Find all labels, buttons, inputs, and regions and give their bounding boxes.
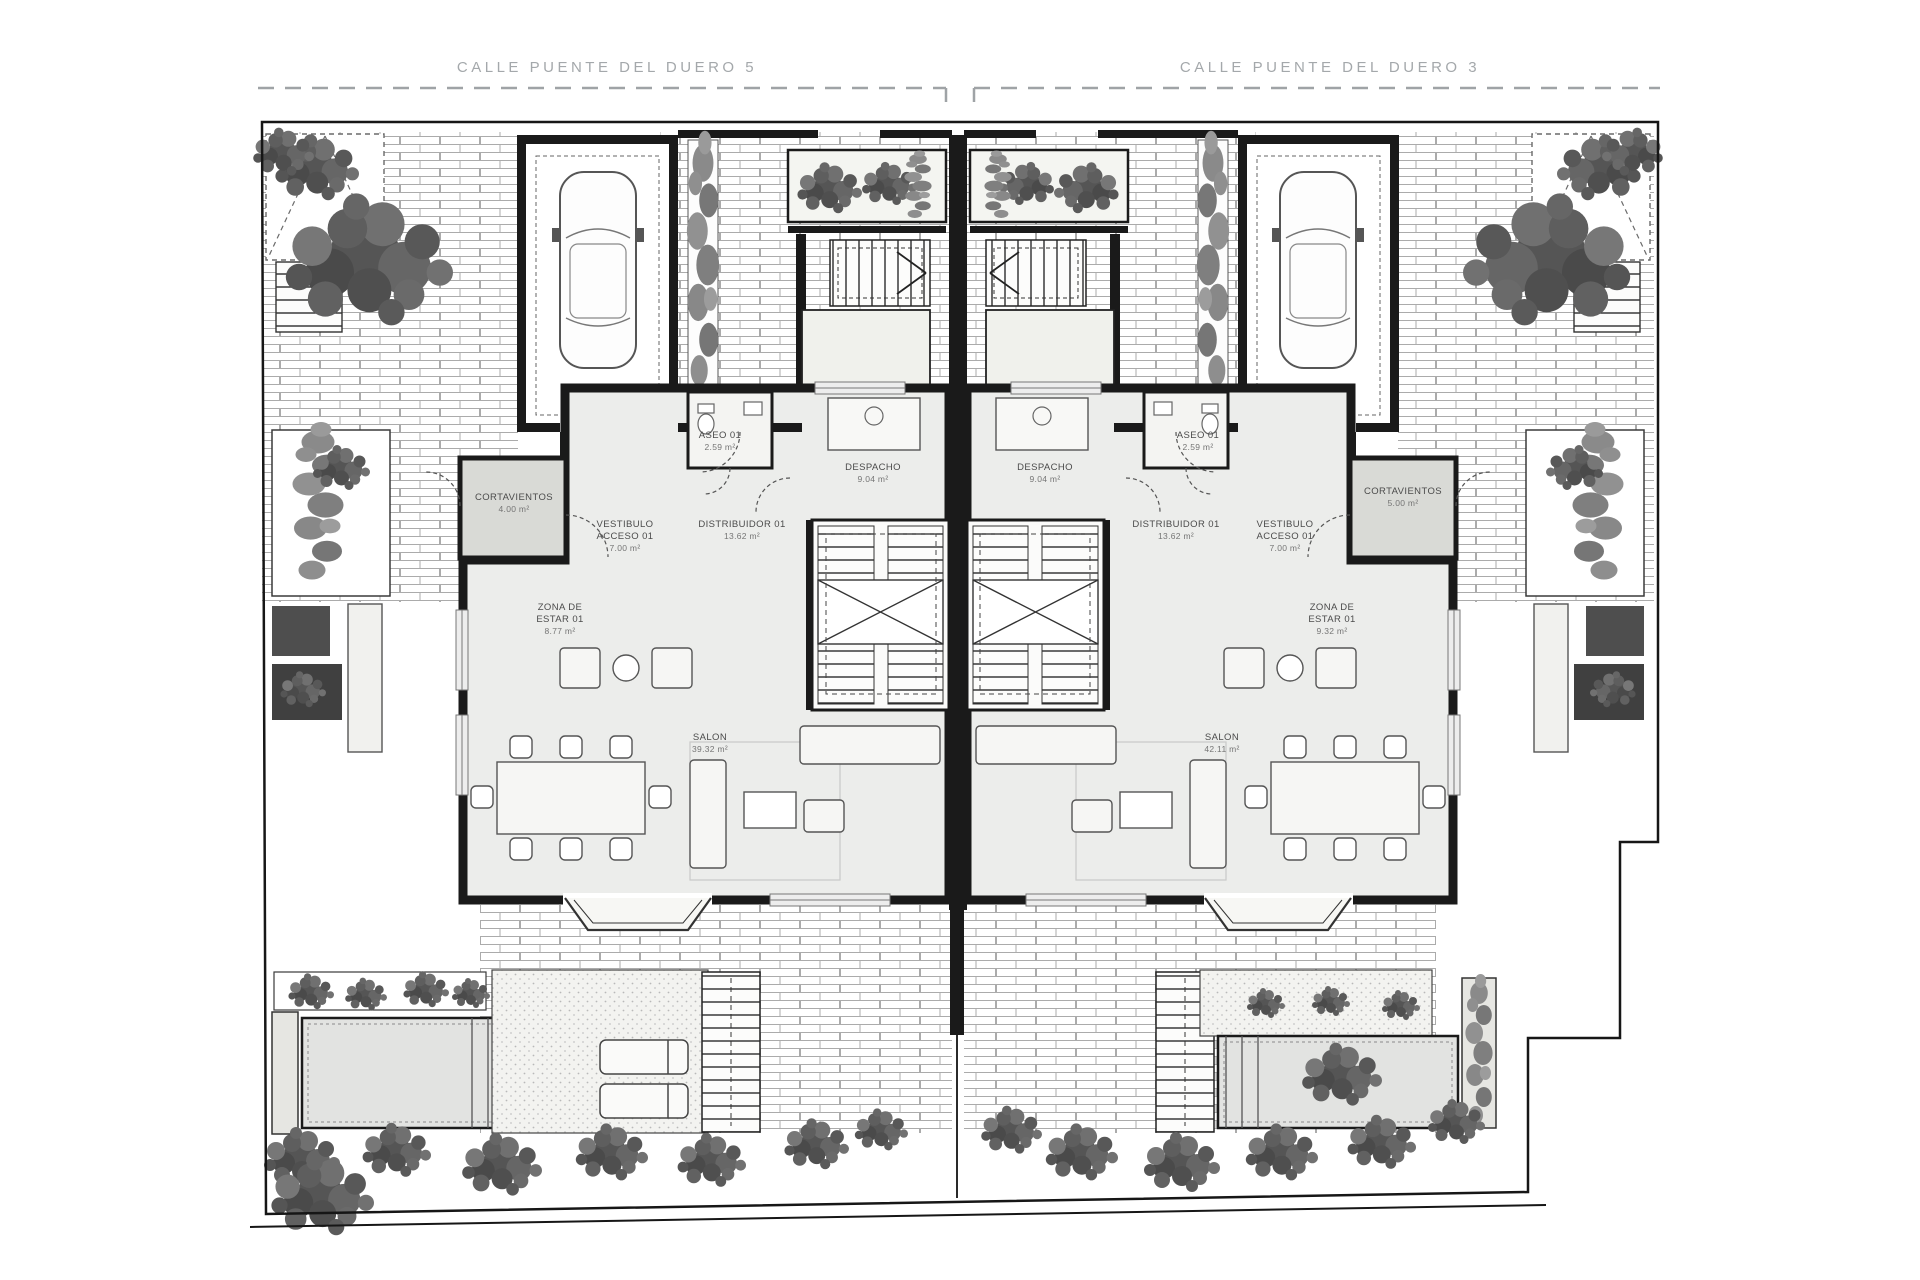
area-cortavientos-left: 4.00 m² — [499, 504, 530, 514]
label-despacho-right: DESPACHO — [1017, 462, 1073, 473]
area-zona-left: 8.77 m² — [545, 626, 576, 636]
area-vestibulo-left: 7.00 m² — [610, 543, 641, 553]
label-aseo-right: ASEO 01 — [1177, 430, 1219, 441]
floor-plan-page: CALLE PUENTE DEL DUERO 5 CALLE PUENTE DE… — [0, 0, 1920, 1280]
garden-stairs-left — [702, 972, 760, 1132]
garden-divider-wall — [950, 905, 964, 1035]
label-zona-right-1: ZONA DE — [1310, 602, 1355, 613]
label-vestibulo-left-2: ACCESO 01 — [597, 531, 654, 542]
area-salon-right: 42.11 m² — [1204, 744, 1239, 754]
street-label-right: CALLE PUENTE DEL DUERO 3 — [1180, 59, 1480, 76]
label-zona-left-2: ESTAR 01 — [536, 614, 583, 625]
label-zona-left-1: ZONA DE — [538, 602, 583, 613]
area-aseo-left: 2.59 m² — [705, 442, 736, 452]
area-cortavientos-right: 5.00 m² — [1388, 498, 1419, 508]
label-despacho-left: DESPACHO — [845, 462, 901, 473]
label-vestibulo-left-1: VESTIBULO — [597, 519, 654, 530]
label-distribuidor-left: DISTRIBUIDOR 01 — [698, 519, 785, 530]
label-vestibulo-right-1: VESTIBULO — [1257, 519, 1314, 530]
label-salon-right: SALON — [1205, 732, 1239, 743]
area-distribuidor-right: 13.62 m² — [1158, 531, 1194, 541]
pool-planter — [272, 1012, 298, 1134]
label-cortavientos-right: CORTAVIENTOS — [1364, 486, 1442, 497]
area-despacho-right: 9.04 m² — [1030, 474, 1061, 484]
label-salon-left: SALON — [693, 732, 727, 743]
party-wall — [949, 135, 967, 910]
area-zona-right: 9.32 m² — [1317, 626, 1348, 636]
label-aseo-left: ASEO 01 — [699, 430, 741, 441]
label-distribuidor-right: DISTRIBUIDOR 01 — [1132, 519, 1219, 530]
label-zona-right-2: ESTAR 01 — [1308, 614, 1355, 625]
label-cortavientos-left: CORTAVIENTOS — [475, 492, 553, 503]
area-salon-left: 39.32 m² — [692, 744, 728, 754]
label-vestibulo-right-2: ACCESO 01 — [1257, 531, 1314, 542]
street-label-left: CALLE PUENTE DEL DUERO 5 — [457, 59, 757, 76]
area-aseo-right: 2.59 m² — [1183, 442, 1214, 452]
area-vestibulo-right: 7.00 m² — [1270, 543, 1301, 553]
floor-plan-canvas: CALLE PUENTE DEL DUERO 5 CALLE PUENTE DE… — [0, 0, 1920, 1280]
area-despacho-left: 9.04 m² — [858, 474, 889, 484]
area-distribuidor-left: 13.62 m² — [724, 531, 760, 541]
